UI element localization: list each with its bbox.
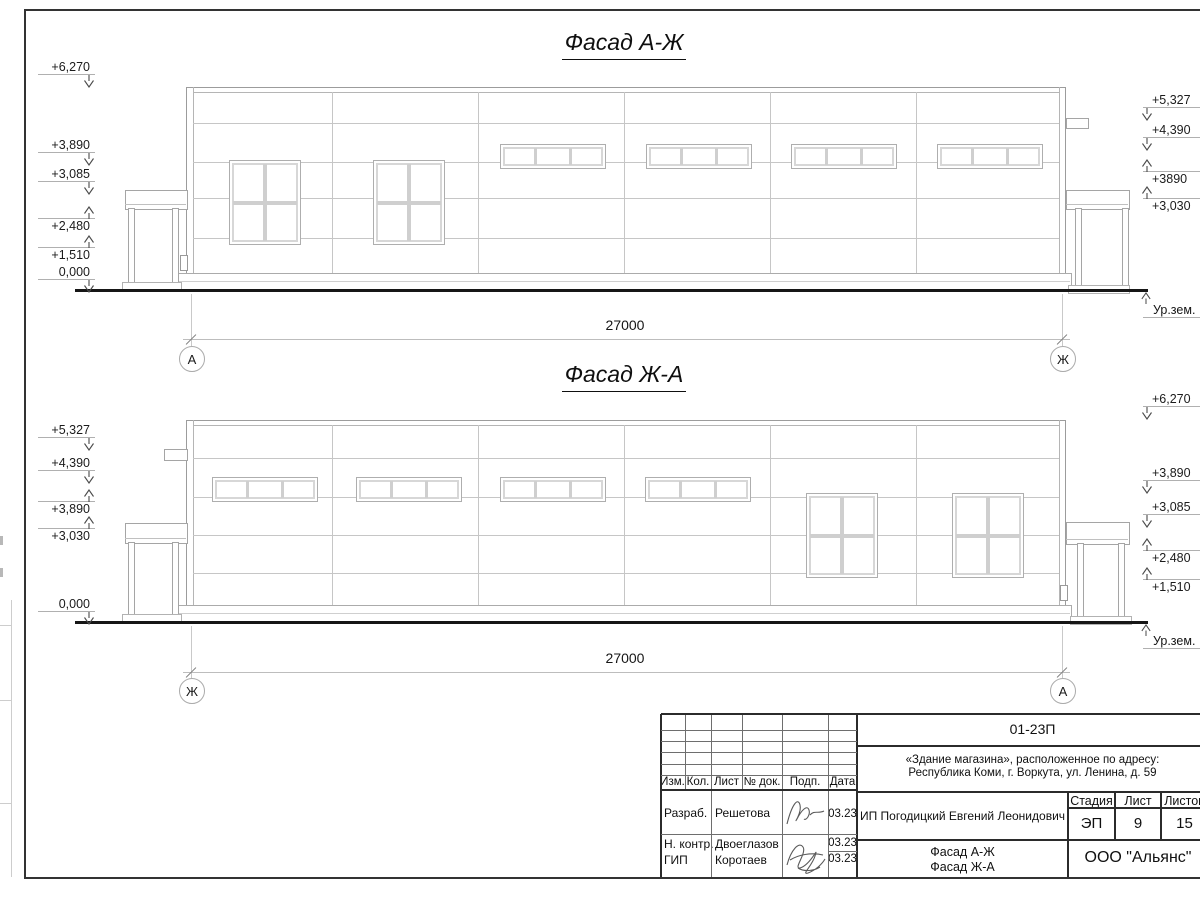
titleblock-sheets-header: Листов [1161, 794, 1200, 808]
facade2-title-text: Фасад Ж-А [562, 361, 687, 392]
dimension-line [183, 339, 1070, 340]
titleblock-line [660, 714, 662, 877]
panel-joint [193, 573, 1059, 574]
axis-circle: А [1050, 678, 1076, 704]
strip-window [500, 477, 606, 502]
elevation-arrow-down-icon [83, 153, 95, 166]
panel-joint [332, 92, 333, 273]
panel-joint [193, 162, 1059, 163]
elevation-arrow-down-icon [83, 280, 95, 293]
titleblock-line [661, 764, 857, 765]
elevation-arrow-down-icon [1141, 138, 1153, 151]
canopy-right-post [1075, 208, 1082, 291]
window-mullion [714, 481, 717, 498]
axis-label: Ж [1057, 352, 1069, 367]
panel-joint [193, 535, 1059, 536]
elevation-arrow-down-icon [1141, 108, 1153, 121]
window-mullion [407, 164, 411, 241]
window-frame [503, 480, 603, 499]
elevation-mark-label: +3890 [1152, 172, 1200, 186]
axis-label: Ж [186, 684, 198, 699]
signer-role: Разраб. [664, 806, 707, 820]
window-mullion [569, 481, 572, 498]
sheet-margin-mark [0, 536, 3, 545]
building-wall [186, 87, 1066, 275]
titleblock-drawing-title-2: Фасад Ж-А [857, 860, 1068, 874]
titleblock-line [661, 834, 857, 835]
signer-role: ГИП [664, 853, 688, 867]
window-mullion [534, 148, 537, 165]
window-frame [649, 147, 749, 166]
titleblock-sheet-value: 9 [1115, 815, 1161, 832]
elevation-arrow-up-icon [1141, 159, 1153, 172]
elevation-mark-label: +5,327 [1152, 93, 1200, 107]
elevation-mark-label: 0,000 [36, 597, 90, 611]
drawing-sheet: Фасад А-Ж Фасад Ж-А 27000 27000 Ур.зем. … [0, 0, 1200, 900]
sheet-margin-line [0, 700, 11, 701]
titleblock-line [661, 752, 857, 753]
corner-trim [1059, 87, 1060, 273]
elevation-mark-label: +4,390 [36, 456, 90, 470]
window-mullion [971, 148, 974, 165]
titleblock-stage-value: ЭП [1068, 815, 1115, 832]
titleblock-line [856, 714, 858, 877]
titleblock-line [1160, 792, 1162, 840]
sheet-border-left [24, 9, 26, 878]
panel-joint [193, 497, 1059, 498]
signer-date: 03.23 [828, 837, 857, 849]
window-mullion [569, 148, 572, 165]
elevation-mark-label: +1,510 [36, 248, 90, 262]
window-frame [215, 480, 315, 499]
titleblock-project-line1: «Здание магазина», расположенное по адре… [857, 754, 1200, 766]
window-mullion [825, 148, 828, 165]
sheet-margin-line [0, 625, 11, 626]
elevation-arrow-up-icon [83, 206, 95, 219]
corner-trim [193, 420, 194, 605]
signature [784, 794, 826, 832]
canopy-left-fascia [125, 538, 186, 539]
panel-joint [916, 425, 917, 605]
panel-joint [478, 92, 479, 273]
ground-level-label: Ур.зем. [1153, 303, 1195, 317]
ground-level-label: Ур.зем. [1153, 634, 1195, 648]
titleblock-client: ИП Погодицкий Евгений Леонидович [859, 809, 1066, 823]
axis-label: А [188, 352, 197, 367]
corner-trim [193, 87, 194, 273]
ground-line [75, 621, 1148, 624]
elevation-arrow-up-icon [1140, 292, 1152, 304]
window-mullion [534, 481, 537, 498]
facade1-title-text: Фасад А-Ж [562, 29, 687, 60]
signer-name: Коротаев [715, 853, 767, 867]
elevation-mark-label: +1,510 [1152, 580, 1200, 594]
titleblock-line [711, 714, 712, 877]
titleblock-sheet-header: Лист [1115, 794, 1161, 808]
titleblock-line [661, 789, 857, 791]
facade2-title: Фасад Ж-А [474, 361, 774, 392]
canopy-left-post [172, 542, 179, 623]
elevation-mark-label: +3,030 [1152, 199, 1200, 213]
ground-line [75, 289, 1148, 292]
elevation-mark-label: +3,030 [36, 529, 90, 543]
axis-circle: Ж [1050, 346, 1076, 372]
elevation-arrow-down-icon [83, 471, 95, 484]
window-frame [648, 480, 748, 499]
titleblock-line [857, 791, 1200, 793]
titleblock-drawing-title-1: Фасад А-Ж [857, 845, 1068, 859]
window-mullion [860, 148, 863, 165]
elevation-mark-label: +5,327 [36, 423, 90, 437]
panel-joint [193, 238, 1059, 239]
titleblock-line [1067, 792, 1069, 877]
panel-joint [193, 458, 1059, 459]
canopy-right-fascia [1066, 539, 1128, 540]
panel-joint [193, 123, 1059, 124]
square-window [373, 160, 445, 245]
elevation-arrow-down-icon [1141, 407, 1153, 420]
drain-bracket [1060, 585, 1068, 601]
panel-joint [624, 92, 625, 273]
panel-joint [332, 425, 333, 605]
elevation-mark-label: 0,000 [36, 265, 90, 279]
titleblock-header-list: Лист [711, 776, 742, 788]
window-mullion [281, 481, 284, 498]
facade1-title: Фасад А-Ж [474, 29, 774, 60]
titleblock-organization: ООО "Альянс" [1068, 849, 1200, 867]
window-mullion [680, 148, 683, 165]
elevation-arrow-down-icon [83, 612, 95, 625]
titleblock-header-izm: Изм. [660, 776, 685, 788]
titleblock-header-podp: Подп. [782, 776, 828, 788]
panel-joint [624, 425, 625, 605]
elevation-arrow-down-icon [83, 438, 95, 451]
elevation-arrow-up-icon [83, 235, 95, 248]
elevation-mark-label: +6,270 [36, 60, 90, 74]
elevation-arrow-up-icon [1141, 186, 1153, 199]
corner-trim [1059, 420, 1060, 605]
signer-role: Н. контр. [664, 837, 714, 851]
window-frame [940, 147, 1040, 166]
window-mullion [263, 164, 267, 241]
signer-name: Двоеглазов [715, 837, 779, 851]
dimension-line [183, 672, 1070, 673]
elevation-mark-label: +3,890 [36, 138, 90, 152]
panel-joint [193, 198, 1059, 199]
leader-line [1143, 648, 1200, 649]
titleblock-stage-header: Стадия [1068, 794, 1115, 808]
elevation-arrow-up-icon [83, 516, 95, 529]
window-mullion [679, 481, 682, 498]
strip-window [937, 144, 1043, 169]
elevation-arrow-down-icon [83, 182, 95, 195]
window-frame [503, 147, 603, 166]
wall-ledge [1066, 118, 1089, 129]
canopy-left-post [128, 208, 135, 290]
window-frame [794, 147, 894, 166]
strip-window [500, 144, 606, 169]
elevation-mark-label: +3,085 [1152, 500, 1200, 514]
elevation-arrow-up-icon [83, 489, 95, 502]
wall-ledge [164, 449, 188, 461]
titleblock-line [661, 775, 857, 776]
axis-circle: А [179, 346, 205, 372]
elevation-arrow-down-icon [1141, 481, 1153, 494]
signer-name: Решетова [715, 806, 770, 820]
parapet-line [193, 425, 1059, 426]
facade1-dimension-label: 27000 [525, 317, 725, 333]
elevation-arrow-up-icon [1141, 567, 1153, 580]
sheet-border-top [24, 9, 1200, 11]
canopy-right-fascia [1066, 204, 1128, 205]
elevation-mark-label: +6,270 [1152, 392, 1200, 406]
canopy-right-roof [1066, 522, 1130, 545]
square-window [952, 493, 1024, 578]
strip-window [212, 477, 318, 502]
signer-date: 03.23 [828, 808, 857, 820]
window-mullion [390, 481, 393, 498]
canopy-left-roof [125, 190, 188, 210]
titleblock-line [1114, 792, 1116, 840]
elevation-mark-label: +3,085 [36, 167, 90, 181]
drain-bracket [180, 255, 188, 271]
canopy-right-post [1118, 543, 1125, 624]
window-frame [359, 480, 459, 499]
signature [780, 835, 828, 877]
titleblock-sheets-value: 15 [1161, 815, 1200, 832]
window-mullion [840, 497, 844, 574]
titleblock-header-kol: Кол. [685, 776, 711, 788]
square-window [806, 493, 878, 578]
base-line [176, 281, 1070, 282]
elevation-arrow-down-icon [83, 75, 95, 88]
canopy-right-post [1077, 543, 1084, 624]
strip-window [356, 477, 462, 502]
building-wall [186, 420, 1066, 607]
canopy-left-post [128, 542, 135, 623]
square-window [229, 160, 301, 245]
sheet-margin-line [0, 803, 11, 804]
window-mullion [425, 481, 428, 498]
strip-window [791, 144, 897, 169]
titleblock-project-line2: Республика Коми, г. Воркута, ул. Ленина,… [857, 767, 1200, 779]
canopy-left-fascia [125, 204, 186, 205]
strip-window [646, 144, 752, 169]
elevation-arrow-up-icon [1141, 538, 1153, 551]
elevation-mark-label: +2,480 [1152, 551, 1200, 565]
sheet-border-bottom [24, 877, 1200, 879]
signer-date: 03.23 [828, 853, 857, 865]
canopy-left-roof [125, 523, 188, 544]
window-mullion [1006, 148, 1009, 165]
titleblock-line [782, 714, 783, 877]
titleblock-line [828, 851, 857, 852]
panel-joint [916, 92, 917, 273]
window-mullion [246, 481, 249, 498]
canopy-right-post [1122, 208, 1129, 291]
titleblock-line [857, 745, 1200, 747]
titleblock-header-ndok: № док. [742, 776, 782, 788]
sheet-margin-line [11, 600, 12, 877]
elevation-mark-label: +3,890 [36, 502, 90, 516]
titleblock-line [1068, 807, 1200, 809]
base-line [176, 613, 1070, 614]
elevation-mark-label: +4,390 [1152, 123, 1200, 137]
parapet-line [193, 92, 1059, 93]
elevation-arrow-up-icon [1140, 624, 1152, 636]
panel-joint [770, 92, 771, 273]
titleblock-doc-code: 01-23П [857, 721, 1200, 737]
sheet-margin-mark [0, 568, 3, 577]
titleblock-line [661, 741, 857, 742]
titleblock-header-data: Дата [828, 776, 857, 788]
window-mullion [715, 148, 718, 165]
panel-joint [770, 425, 771, 605]
elevation-mark-label: +3,890 [1152, 466, 1200, 480]
titleblock-line [661, 713, 1200, 715]
titleblock-line [828, 714, 829, 877]
canopy-left-post [172, 208, 179, 290]
strip-window [645, 477, 751, 502]
axis-circle: Ж [179, 678, 205, 704]
titleblock-line [661, 730, 857, 731]
leader-line [1143, 317, 1200, 318]
facade2-dimension-label: 27000 [525, 650, 725, 666]
axis-label: А [1059, 684, 1068, 699]
window-mullion [986, 497, 990, 574]
elevation-arrow-down-icon [1141, 515, 1153, 528]
canopy-right-roof [1066, 190, 1130, 210]
elevation-mark-label: +2,480 [36, 219, 90, 233]
panel-joint [478, 425, 479, 605]
titleblock-line [857, 839, 1200, 841]
